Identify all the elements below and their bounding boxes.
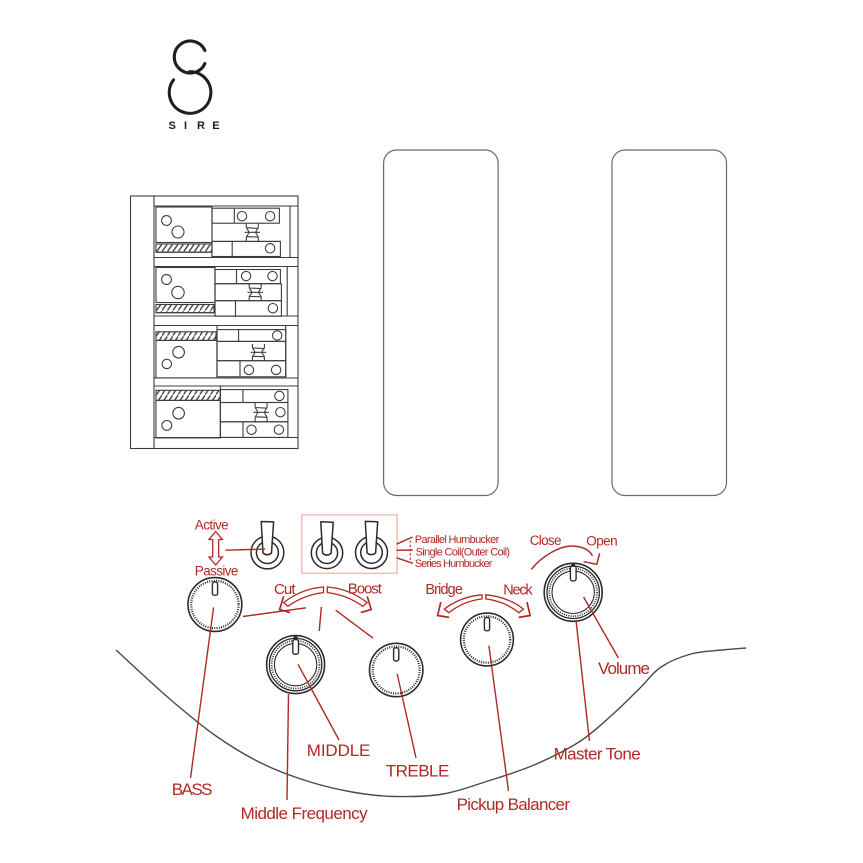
svg-text:Parallel Humbucker: Parallel Humbucker (415, 534, 500, 546)
svg-text:Close: Close (530, 533, 562, 548)
svg-text:Cut: Cut (274, 581, 296, 598)
svg-text:Master Tone: Master Tone (554, 745, 641, 764)
svg-text:S: S (169, 120, 176, 132)
svg-text:Open: Open (586, 534, 617, 549)
svg-text:R: R (197, 120, 205, 132)
svg-text:I: I (184, 120, 187, 132)
svg-text:Series Humbucker: Series Humbucker (415, 558, 493, 570)
svg-text:BASS: BASS (172, 780, 213, 799)
svg-text:Neck: Neck (503, 582, 533, 598)
svg-text:Pickup Balancer: Pickup Balancer (457, 795, 571, 814)
svg-text:Bridge: Bridge (425, 582, 463, 598)
svg-text:Boost: Boost (348, 581, 383, 598)
svg-text:MIDDLE: MIDDLE (307, 741, 371, 760)
svg-text:Single Coil(Outer Coil): Single Coil(Outer Coil) (416, 547, 511, 559)
svg-text:E: E (212, 120, 219, 132)
svg-text:Middle Frequency: Middle Frequency (241, 804, 369, 823)
svg-text:Passive: Passive (195, 564, 239, 579)
svg-text:Active: Active (195, 518, 229, 533)
svg-text:Volume: Volume (598, 659, 650, 678)
svg-text:TREBLE: TREBLE (386, 762, 450, 781)
